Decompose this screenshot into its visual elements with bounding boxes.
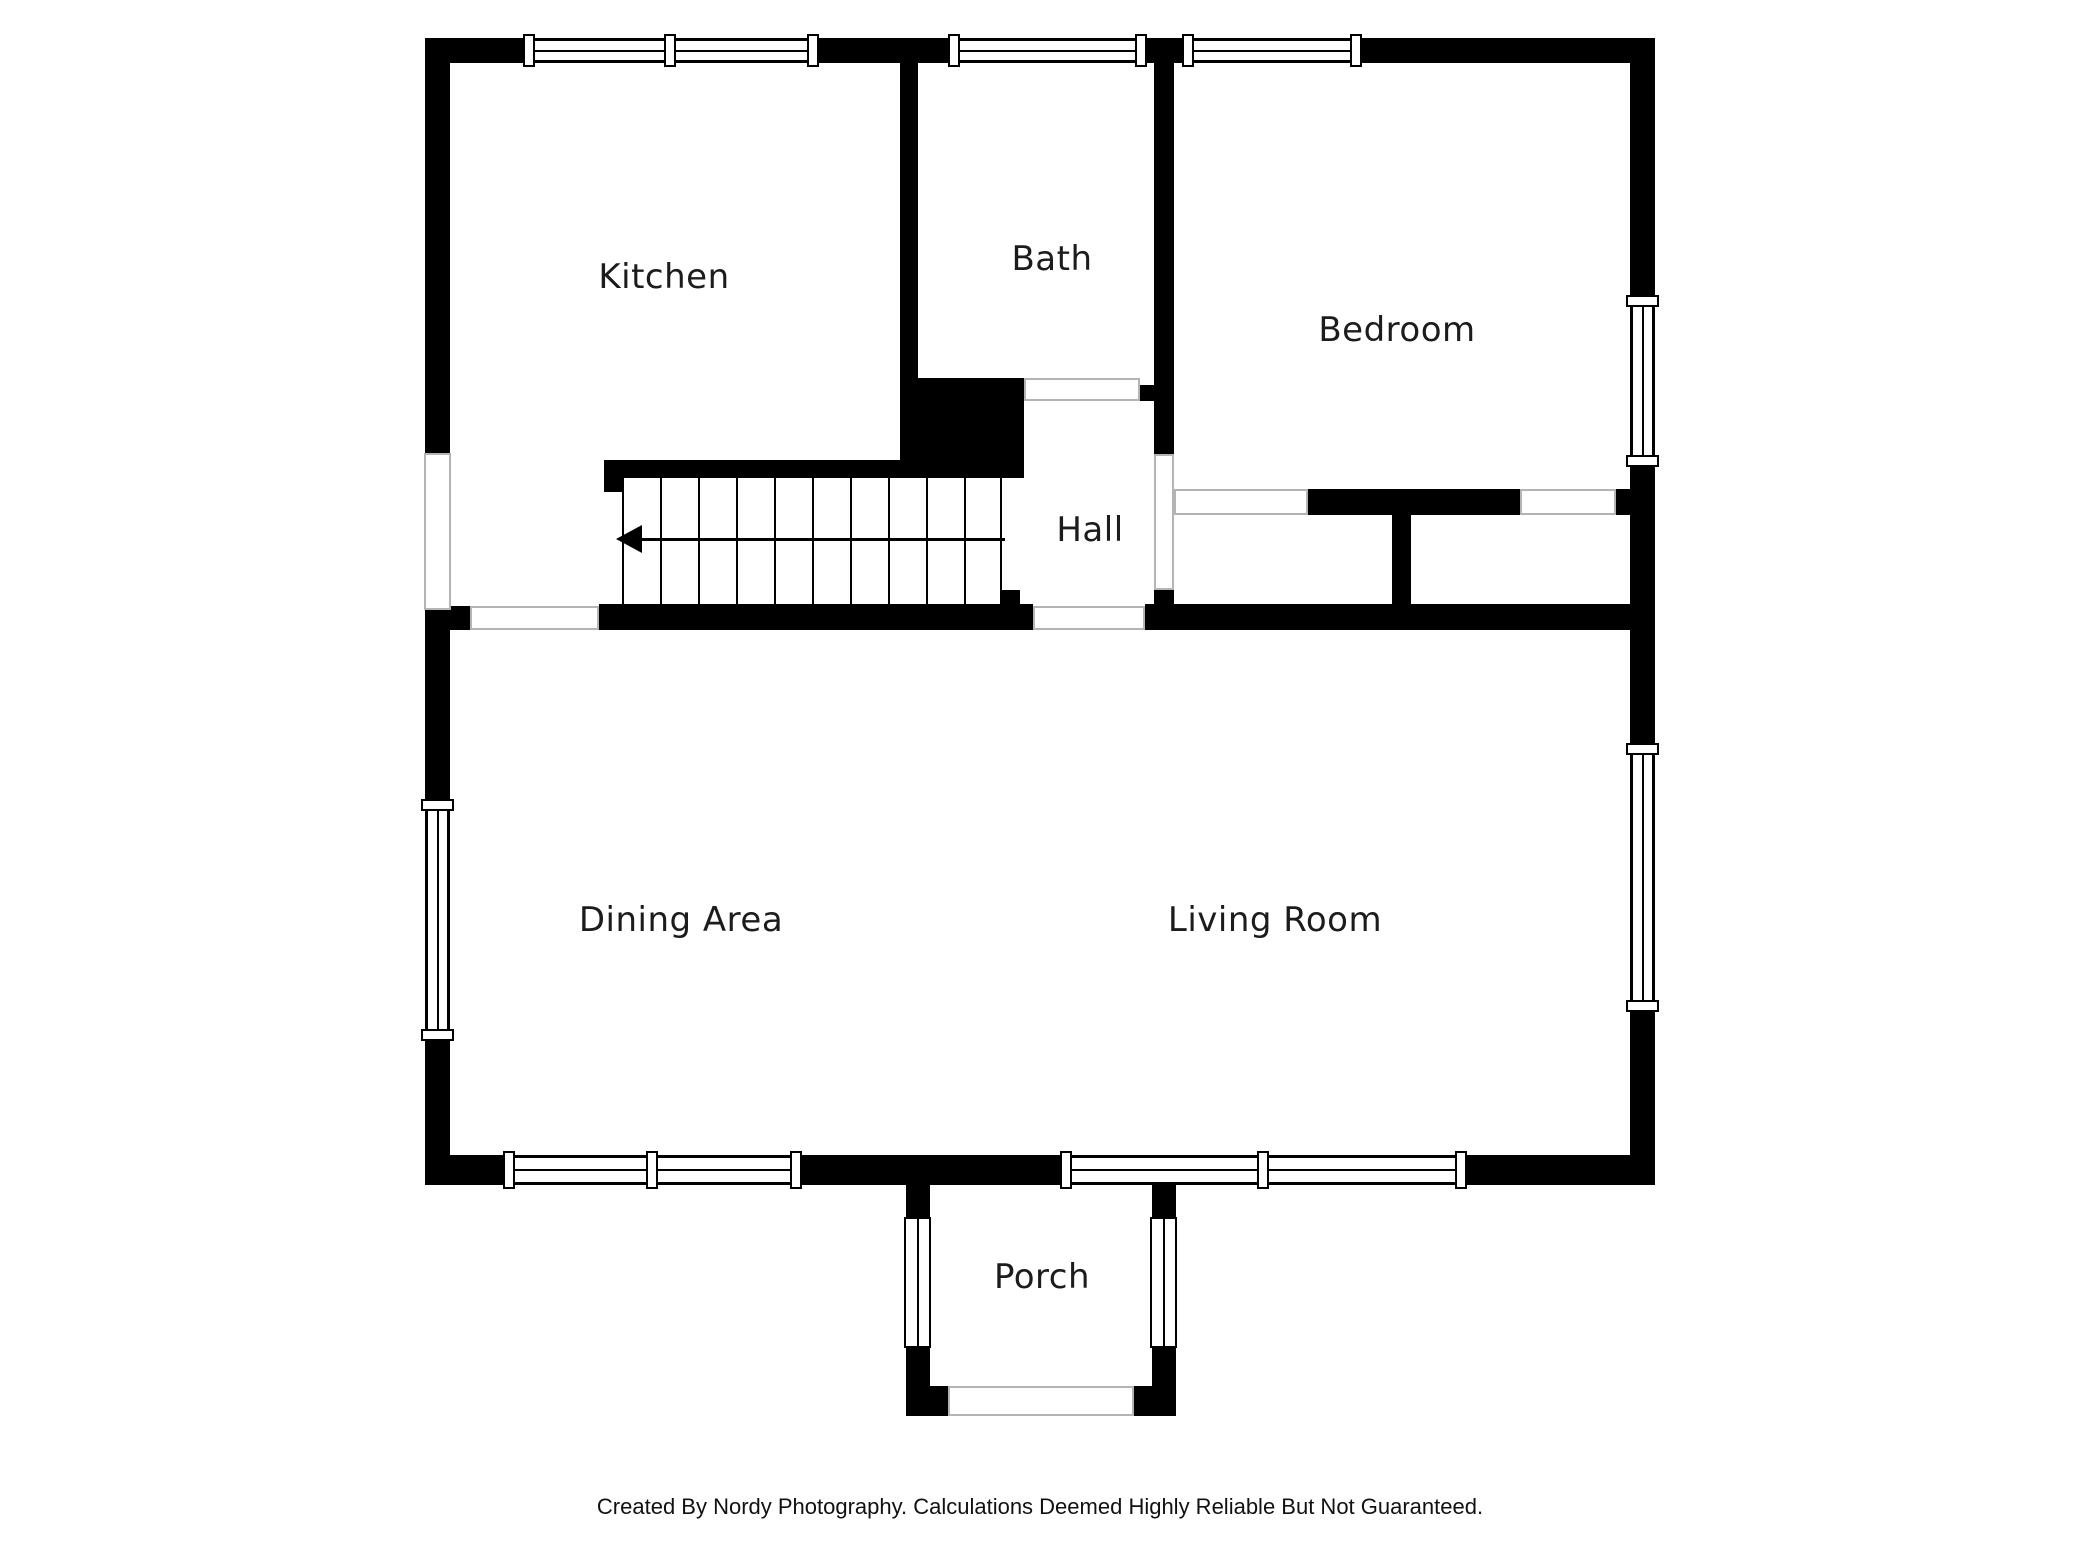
porch-east-wall — [1152, 1348, 1176, 1386]
bedroom-south-wall-stub — [1616, 489, 1630, 515]
bedroom-top-window — [1184, 38, 1360, 63]
window-sash-line — [1642, 297, 1644, 465]
stair-north-wall — [604, 460, 901, 478]
window-sash-line — [1163, 1219, 1165, 1346]
wall-segment — [425, 610, 450, 801]
window-frame — [421, 799, 454, 811]
window-frame — [1350, 34, 1362, 67]
stair-direction-arrow — [640, 538, 1005, 541]
bath-door-opening — [1024, 378, 1140, 401]
bath-window — [950, 38, 1145, 63]
wall-segment — [1145, 38, 1184, 63]
porch-se-corner — [1134, 1386, 1176, 1416]
closet-opening — [1174, 489, 1308, 515]
window-frame — [1626, 295, 1659, 307]
window-frame — [1626, 1000, 1659, 1012]
window-mullion — [1257, 1151, 1269, 1189]
window-sash-line — [437, 801, 439, 1039]
wall-segment — [817, 38, 950, 63]
window-frame — [1135, 34, 1147, 67]
staircase-treads — [622, 478, 1002, 604]
window-frame — [421, 1029, 454, 1041]
kitchen-window — [525, 38, 817, 63]
window-frame — [1626, 455, 1659, 467]
room-label-porch: Porch — [994, 1257, 1090, 1297]
window-mullion — [646, 1151, 658, 1189]
dining-side-window — [425, 801, 450, 1039]
closet-divider-wall — [1392, 515, 1411, 606]
bath-door-jamb — [1140, 385, 1154, 401]
window-sash-line — [950, 50, 1145, 52]
porch-east-window — [1150, 1217, 1177, 1348]
living-room-window — [1062, 1155, 1465, 1185]
hall-bedroom-door-opening — [1154, 454, 1174, 590]
window-frame — [1455, 1151, 1467, 1189]
porch-west-wall — [906, 1348, 930, 1386]
stair-nib — [604, 478, 622, 492]
window-frame — [1182, 34, 1194, 67]
kitchen-side-opening — [424, 453, 451, 610]
kitchen-dining-opening — [470, 606, 599, 630]
wall-segment — [800, 1155, 1062, 1185]
closet-opening — [1520, 489, 1616, 515]
window-frame — [503, 1151, 515, 1189]
wall-segment — [1630, 38, 1655, 297]
room-label-bedroom: Bedroom — [1318, 310, 1475, 350]
window-frame — [523, 34, 535, 67]
stair-south-wall — [599, 604, 1033, 630]
porch-east-wall — [1152, 1185, 1176, 1217]
window-mullion — [664, 34, 676, 67]
window-frame — [807, 34, 819, 67]
wall-segment — [1465, 1155, 1655, 1185]
stair-corner-wall-block — [900, 378, 1024, 478]
credit-text: Created By Nordy Photography. Calculatio… — [0, 1494, 2080, 1520]
window-frame — [1626, 743, 1659, 755]
room-label-living-room: Living Room — [1168, 900, 1382, 940]
living-room-side-window — [1630, 745, 1655, 1010]
window-sash-line — [917, 1219, 919, 1346]
wall-segment — [1630, 465, 1655, 745]
room-label-kitchen: Kitchen — [598, 257, 729, 297]
window-frame — [790, 1151, 802, 1189]
bedroom-south-wall — [1308, 489, 1520, 515]
window-sash-line — [1642, 745, 1644, 1010]
room-label-bath: Bath — [1011, 239, 1092, 279]
wall-segment — [425, 38, 450, 453]
bedroom-west-wall — [1154, 63, 1174, 454]
kitchen-dining-wall-stub — [450, 606, 470, 630]
floor-plan: Kitchen Bath Bedroom Hall Dining Area Li… — [0, 0, 2080, 1560]
window-sash-line — [1184, 50, 1360, 52]
bedroom-side-window — [1630, 297, 1655, 465]
window-frame — [948, 34, 960, 67]
porch-west-wall — [906, 1185, 930, 1217]
wall-segment — [1360, 38, 1655, 63]
porch-entry-opening — [948, 1386, 1134, 1416]
wall-segment — [425, 1155, 505, 1185]
hall-living-opening — [1033, 606, 1145, 630]
room-label-hall: Hall — [1056, 510, 1123, 550]
stair-direction-arrow-head — [616, 525, 642, 553]
stair-nib — [1002, 590, 1020, 604]
window-frame — [1060, 1151, 1072, 1189]
porch-west-window — [904, 1217, 931, 1348]
kitchen-bath-wall — [900, 63, 918, 378]
room-label-dining-area: Dining Area — [579, 900, 783, 940]
hall-living-wall — [1145, 604, 1630, 630]
dining-window — [505, 1155, 800, 1185]
porch-sw-corner — [906, 1386, 948, 1416]
